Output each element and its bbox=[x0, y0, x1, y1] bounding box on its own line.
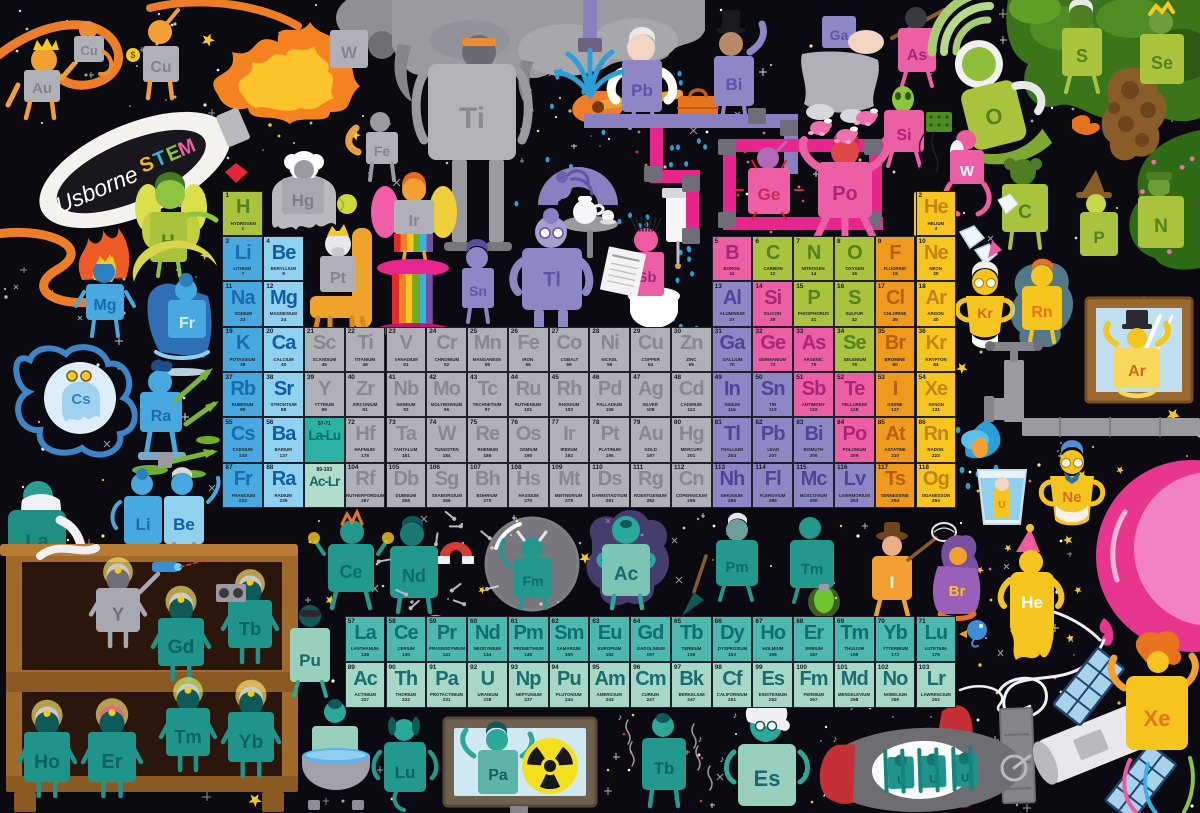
svg-text:Nd: Nd bbox=[402, 566, 426, 586]
svg-text:U: U bbox=[961, 772, 969, 784]
svg-text:N: N bbox=[1154, 216, 1168, 237]
svg-text:Fe: Fe bbox=[374, 143, 391, 159]
svg-text:W: W bbox=[341, 43, 358, 62]
svg-text:Po: Po bbox=[832, 183, 858, 205]
svg-text:♪: ♪ bbox=[720, 754, 725, 764]
svg-text:Ge: Ge bbox=[758, 185, 781, 204]
svg-text:Tm: Tm bbox=[801, 561, 824, 578]
svg-text:Tm: Tm bbox=[174, 726, 202, 747]
svg-text:Ir: Ir bbox=[409, 213, 420, 230]
svg-text:Cu: Cu bbox=[80, 43, 97, 58]
svg-text:Kr: Kr bbox=[977, 305, 993, 321]
svg-text:S: S bbox=[1076, 46, 1088, 66]
svg-text:Pu: Pu bbox=[299, 651, 321, 670]
svg-text:♪: ♪ bbox=[698, 734, 703, 744]
svg-text:Tl: Tl bbox=[543, 269, 561, 291]
svg-text:Li: Li bbox=[135, 515, 150, 534]
svg-text:Fm: Fm bbox=[523, 573, 544, 589]
svg-text:Yb: Yb bbox=[239, 732, 264, 753]
svg-text:P: P bbox=[1093, 228, 1104, 247]
svg-text:C: C bbox=[1018, 202, 1032, 223]
svg-text:Si: Si bbox=[896, 127, 911, 144]
svg-text:Lu: Lu bbox=[395, 763, 416, 782]
svg-text:Hg: Hg bbox=[292, 191, 315, 210]
svg-text:Ne: Ne bbox=[1062, 489, 1081, 506]
svg-text:W: W bbox=[960, 163, 975, 180]
svg-text:Cs: Cs bbox=[71, 391, 90, 408]
svg-text:Ra: Ra bbox=[151, 408, 172, 425]
svg-text:♪: ♪ bbox=[618, 712, 623, 722]
svg-text:Tb: Tb bbox=[654, 759, 675, 778]
svg-text:Be: Be bbox=[173, 515, 195, 534]
svg-text:Fr: Fr bbox=[179, 315, 195, 332]
svg-text:Ti: Ti bbox=[459, 102, 485, 135]
svg-text:Ac: Ac bbox=[614, 564, 639, 585]
svg-text:U: U bbox=[998, 500, 1005, 511]
svg-text:Es: Es bbox=[754, 766, 781, 791]
svg-text:Tb: Tb bbox=[239, 618, 262, 639]
svg-text:Ar: Ar bbox=[1128, 363, 1146, 380]
svg-text:Er: Er bbox=[101, 751, 122, 773]
svg-text:Au: Au bbox=[32, 80, 52, 97]
svg-text:Pb: Pb bbox=[631, 81, 653, 100]
svg-text:Ga: Ga bbox=[830, 27, 849, 43]
svg-text:Bi: Bi bbox=[726, 75, 743, 94]
svg-text:Sn: Sn bbox=[469, 283, 487, 299]
svg-text:Rn: Rn bbox=[1031, 304, 1052, 321]
svg-text:Y: Y bbox=[112, 603, 125, 624]
svg-text:Ce: Ce bbox=[339, 562, 362, 582]
svg-text:Pm: Pm bbox=[725, 559, 748, 576]
svg-text:I: I bbox=[890, 573, 895, 592]
svg-text:Pt: Pt bbox=[330, 270, 347, 287]
svg-text:Pa: Pa bbox=[488, 767, 508, 784]
svg-text:As: As bbox=[907, 47, 928, 64]
svg-text:Ho: Ho bbox=[34, 752, 60, 773]
svg-text:Gd: Gd bbox=[168, 637, 195, 658]
svg-text:♪: ♪ bbox=[733, 710, 738, 720]
svg-text:Xe: Xe bbox=[1144, 706, 1171, 731]
svg-text:$: $ bbox=[130, 50, 135, 60]
svg-text:♪: ♪ bbox=[833, 734, 838, 744]
svg-text:Br: Br bbox=[949, 583, 966, 600]
svg-text:Mg: Mg bbox=[93, 297, 116, 314]
svg-text:Se: Se bbox=[1151, 53, 1173, 73]
svg-text:He: He bbox=[1021, 593, 1043, 612]
svg-text:Cu: Cu bbox=[150, 59, 171, 76]
